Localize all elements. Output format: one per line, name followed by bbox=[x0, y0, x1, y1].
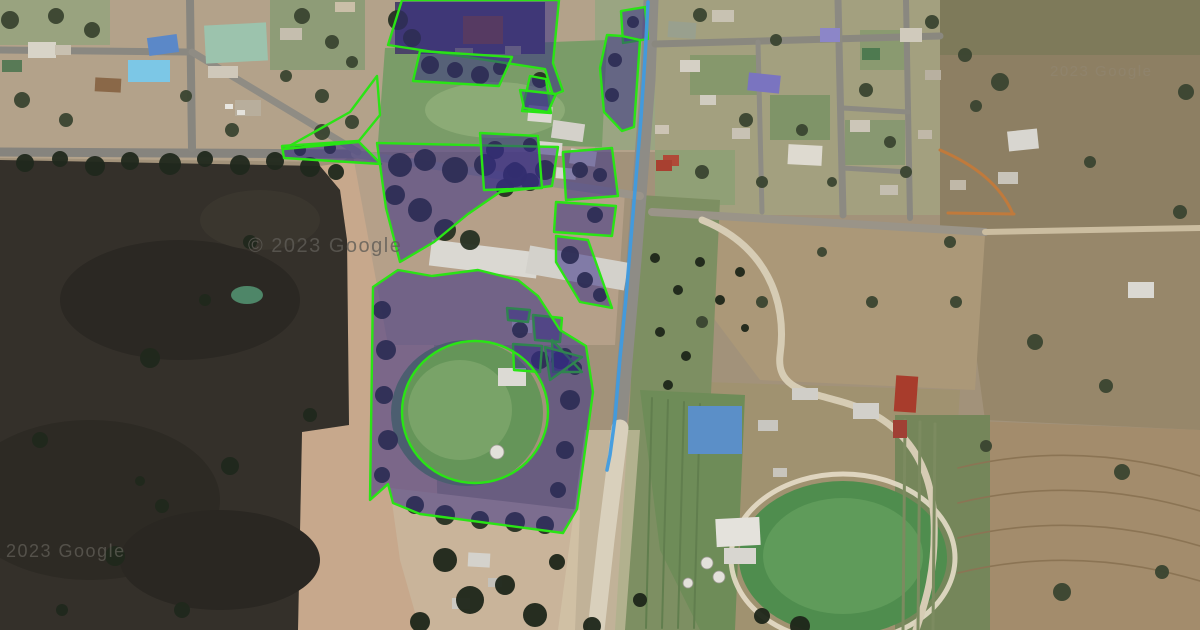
water-tank bbox=[490, 445, 504, 459]
building bbox=[128, 60, 170, 82]
building bbox=[998, 172, 1018, 184]
tree-canopy bbox=[958, 48, 972, 62]
building bbox=[853, 403, 879, 419]
google-watermark: © 2023 Google bbox=[248, 235, 402, 257]
tree-canopy bbox=[950, 296, 962, 308]
rural-strip-top bbox=[940, 0, 1200, 55]
road-east-continuation bbox=[985, 228, 1200, 232]
tree-canopy bbox=[59, 113, 73, 127]
tree-canopy bbox=[230, 155, 250, 175]
tree-canopy bbox=[695, 165, 709, 179]
building bbox=[95, 77, 122, 92]
building bbox=[862, 48, 880, 60]
tree-canopy bbox=[944, 236, 956, 248]
building bbox=[225, 104, 233, 109]
canopy-cluster-top[interactable] bbox=[520, 90, 556, 112]
tree-canopy bbox=[346, 56, 358, 68]
building bbox=[918, 130, 932, 139]
canopy-east-rect[interactable] bbox=[554, 202, 616, 236]
building bbox=[55, 45, 71, 55]
rural-field-east bbox=[960, 230, 1200, 430]
street-nw-vertical bbox=[190, 0, 192, 148]
field-blotch bbox=[120, 510, 320, 610]
tree-canopy bbox=[549, 554, 565, 570]
building bbox=[280, 28, 302, 40]
tree-canopy bbox=[817, 247, 827, 257]
tree-canopy bbox=[52, 151, 68, 167]
tree-canopy bbox=[925, 15, 939, 29]
tree-canopy bbox=[866, 296, 878, 308]
field-pond bbox=[231, 286, 263, 304]
tree-canopy bbox=[85, 156, 105, 176]
canopy-hedge-strip[interactable] bbox=[413, 51, 512, 86]
tree-canopy bbox=[754, 608, 770, 624]
tree-canopy bbox=[1178, 84, 1194, 100]
tree-canopy bbox=[345, 115, 359, 129]
building bbox=[28, 42, 56, 58]
tree-canopy bbox=[1155, 565, 1169, 579]
satellite-map: © 2023 Google2023 Google2023 Google bbox=[0, 0, 1200, 630]
tree-canopy bbox=[495, 575, 515, 595]
tree-canopy bbox=[56, 604, 68, 616]
building bbox=[787, 144, 822, 166]
tree-canopy bbox=[294, 8, 310, 24]
google-watermark: 2023 Google bbox=[1050, 63, 1152, 80]
tree-canopy bbox=[673, 285, 683, 295]
tree-canopy bbox=[180, 90, 192, 102]
building bbox=[688, 406, 742, 454]
building bbox=[792, 388, 818, 400]
tree-canopy bbox=[225, 123, 239, 137]
building bbox=[950, 180, 966, 190]
canopy-west-quad[interactable] bbox=[480, 133, 542, 190]
building bbox=[1128, 282, 1154, 298]
tree-canopy bbox=[756, 296, 768, 308]
tree-canopy bbox=[980, 440, 992, 452]
tree-canopy bbox=[735, 267, 745, 277]
building bbox=[655, 125, 669, 134]
building bbox=[900, 28, 922, 42]
tree-canopy bbox=[199, 294, 211, 306]
crop-row bbox=[933, 424, 935, 630]
building bbox=[680, 60, 700, 72]
tree-canopy bbox=[633, 593, 647, 607]
tree-canopy bbox=[770, 34, 782, 46]
building bbox=[724, 548, 756, 564]
tree-canopy bbox=[1053, 583, 1071, 601]
tree-canopy bbox=[32, 432, 48, 448]
building bbox=[2, 60, 22, 72]
tree-canopy bbox=[155, 499, 169, 513]
building bbox=[656, 160, 672, 171]
tree-canopy bbox=[14, 92, 30, 108]
crop-row bbox=[903, 420, 905, 630]
tree-canopy bbox=[1027, 334, 1043, 350]
tree-canopy bbox=[693, 8, 707, 22]
tree-canopy bbox=[315, 89, 329, 103]
tree-canopy bbox=[266, 152, 284, 170]
building bbox=[335, 2, 355, 12]
tree-canopy bbox=[715, 295, 725, 305]
building bbox=[820, 28, 840, 42]
tree-canopy bbox=[1, 11, 19, 29]
google-watermark: 2023 Google bbox=[6, 541, 126, 561]
building bbox=[773, 468, 787, 477]
tree-canopy bbox=[1173, 205, 1187, 219]
tree-canopy bbox=[650, 253, 660, 263]
building bbox=[894, 375, 918, 412]
football-oval-light bbox=[763, 498, 923, 614]
tree-canopy bbox=[84, 22, 100, 38]
building bbox=[747, 72, 781, 93]
dirt-track-2 bbox=[948, 213, 1014, 214]
tree-canopy bbox=[174, 602, 190, 618]
building bbox=[732, 128, 750, 139]
tree-canopy bbox=[280, 70, 292, 82]
tree-canopy bbox=[681, 351, 691, 361]
tree-canopy bbox=[970, 100, 982, 112]
tree-canopy bbox=[1114, 464, 1130, 480]
building bbox=[208, 66, 238, 78]
tree-canopy bbox=[991, 73, 1009, 91]
tree-canopy bbox=[303, 408, 317, 422]
tree-canopy bbox=[655, 327, 665, 337]
tree-canopy bbox=[433, 548, 457, 572]
building bbox=[468, 552, 491, 567]
tree-canopy bbox=[796, 124, 808, 136]
tree-canopy bbox=[16, 154, 34, 172]
tree-canopy bbox=[1084, 156, 1096, 168]
tree-canopy bbox=[739, 113, 753, 127]
water-tank bbox=[683, 578, 693, 588]
tree-canopy bbox=[900, 166, 912, 178]
tree-canopy bbox=[1099, 379, 1113, 393]
tree-canopy bbox=[460, 230, 480, 250]
water-tank bbox=[713, 571, 725, 583]
building bbox=[700, 95, 716, 105]
water-tank bbox=[701, 557, 713, 569]
canopy-ne-quad[interactable] bbox=[563, 148, 618, 200]
map-canvas[interactable]: © 2023 Google2023 Google2023 Google bbox=[0, 0, 1200, 630]
building bbox=[1007, 128, 1039, 151]
tree-canopy bbox=[197, 151, 213, 167]
tree-canopy bbox=[663, 380, 673, 390]
building bbox=[204, 22, 268, 63]
tree-canopy bbox=[756, 176, 768, 188]
tree-canopy bbox=[48, 8, 64, 24]
building bbox=[893, 420, 907, 438]
tree-canopy bbox=[741, 324, 749, 332]
building bbox=[667, 21, 696, 39]
tree-canopy bbox=[884, 136, 896, 148]
tree-canopy bbox=[328, 164, 344, 180]
tree-canopy bbox=[695, 257, 705, 267]
tree-canopy bbox=[456, 586, 484, 614]
tree-canopy bbox=[696, 316, 708, 328]
tree-canopy bbox=[523, 603, 547, 627]
crop-row bbox=[918, 422, 920, 630]
building bbox=[712, 10, 734, 22]
tree-canopy bbox=[827, 177, 837, 187]
tree-canopy bbox=[859, 83, 873, 97]
building bbox=[715, 517, 760, 547]
building bbox=[880, 185, 898, 195]
building bbox=[925, 70, 941, 80]
tree-canopy bbox=[221, 457, 239, 475]
field-blotch bbox=[60, 240, 300, 360]
tree-canopy bbox=[135, 476, 145, 486]
tree-canopy bbox=[325, 35, 339, 49]
building bbox=[758, 420, 778, 431]
tree-canopy bbox=[159, 153, 181, 175]
tree-canopy bbox=[140, 348, 160, 368]
tree-canopy bbox=[121, 152, 139, 170]
building bbox=[237, 110, 245, 115]
building bbox=[850, 120, 870, 132]
